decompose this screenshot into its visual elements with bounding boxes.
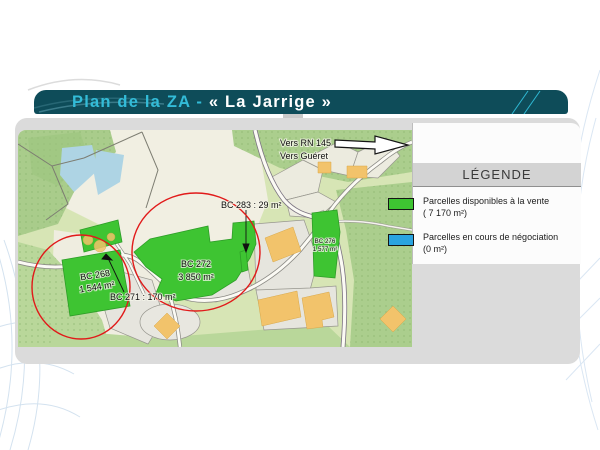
- label-vers-rn145: Vers RN 145: [280, 138, 331, 148]
- legend-item-available-line2: ( 7 170 m²): [423, 207, 549, 219]
- title-banner: Plan de la ZA - « La Jarrige »: [34, 90, 568, 114]
- page-title-name: « La Jarrige »: [209, 93, 332, 111]
- legend-swatch-negotiation: [388, 234, 414, 246]
- legend-heading: LÉGENDE: [413, 163, 581, 187]
- page-title: Plan de la ZA - « La Jarrige »: [72, 90, 332, 114]
- page-title-prefix: Plan de la ZA -: [72, 93, 209, 111]
- label-bc272-area: 3 850 m²: [178, 272, 214, 282]
- label-bc283: BC 283 : 29 m²: [221, 200, 282, 210]
- zone-map: Vers RN 145 Vers Guéret BC 283 : 29 m² B…: [18, 130, 412, 347]
- legend-item-negotiation-line2: (0 m²): [423, 243, 558, 255]
- legend-panel: LÉGENDE Parcelles disponibles à la vente…: [412, 123, 581, 264]
- label-vers-gueret: Vers Guéret: [280, 151, 329, 161]
- legend-item-negotiation: Parcelles en cours de négociation (0 m²): [423, 231, 558, 255]
- label-bc276-area: 1 577 m²: [313, 246, 337, 253]
- label-bc271: BC 271 : 170 m²: [110, 292, 176, 302]
- label-bc272-id: BC 272: [181, 259, 211, 269]
- slide: Plan de la ZA - « La Jarrige »: [0, 0, 600, 450]
- label-bc276-id: BC 276: [315, 238, 336, 245]
- legend-item-available-line1: Parcelles disponibles à la vente: [423, 195, 549, 207]
- map-canvas: Vers RN 145 Vers Guéret BC 283 : 29 m² B…: [18, 130, 412, 347]
- legend-item-available: Parcelles disponibles à la vente ( 7 170…: [423, 195, 549, 219]
- legend-swatch-available: [388, 198, 414, 210]
- legend-item-negotiation-line1: Parcelles en cours de négociation: [423, 231, 558, 243]
